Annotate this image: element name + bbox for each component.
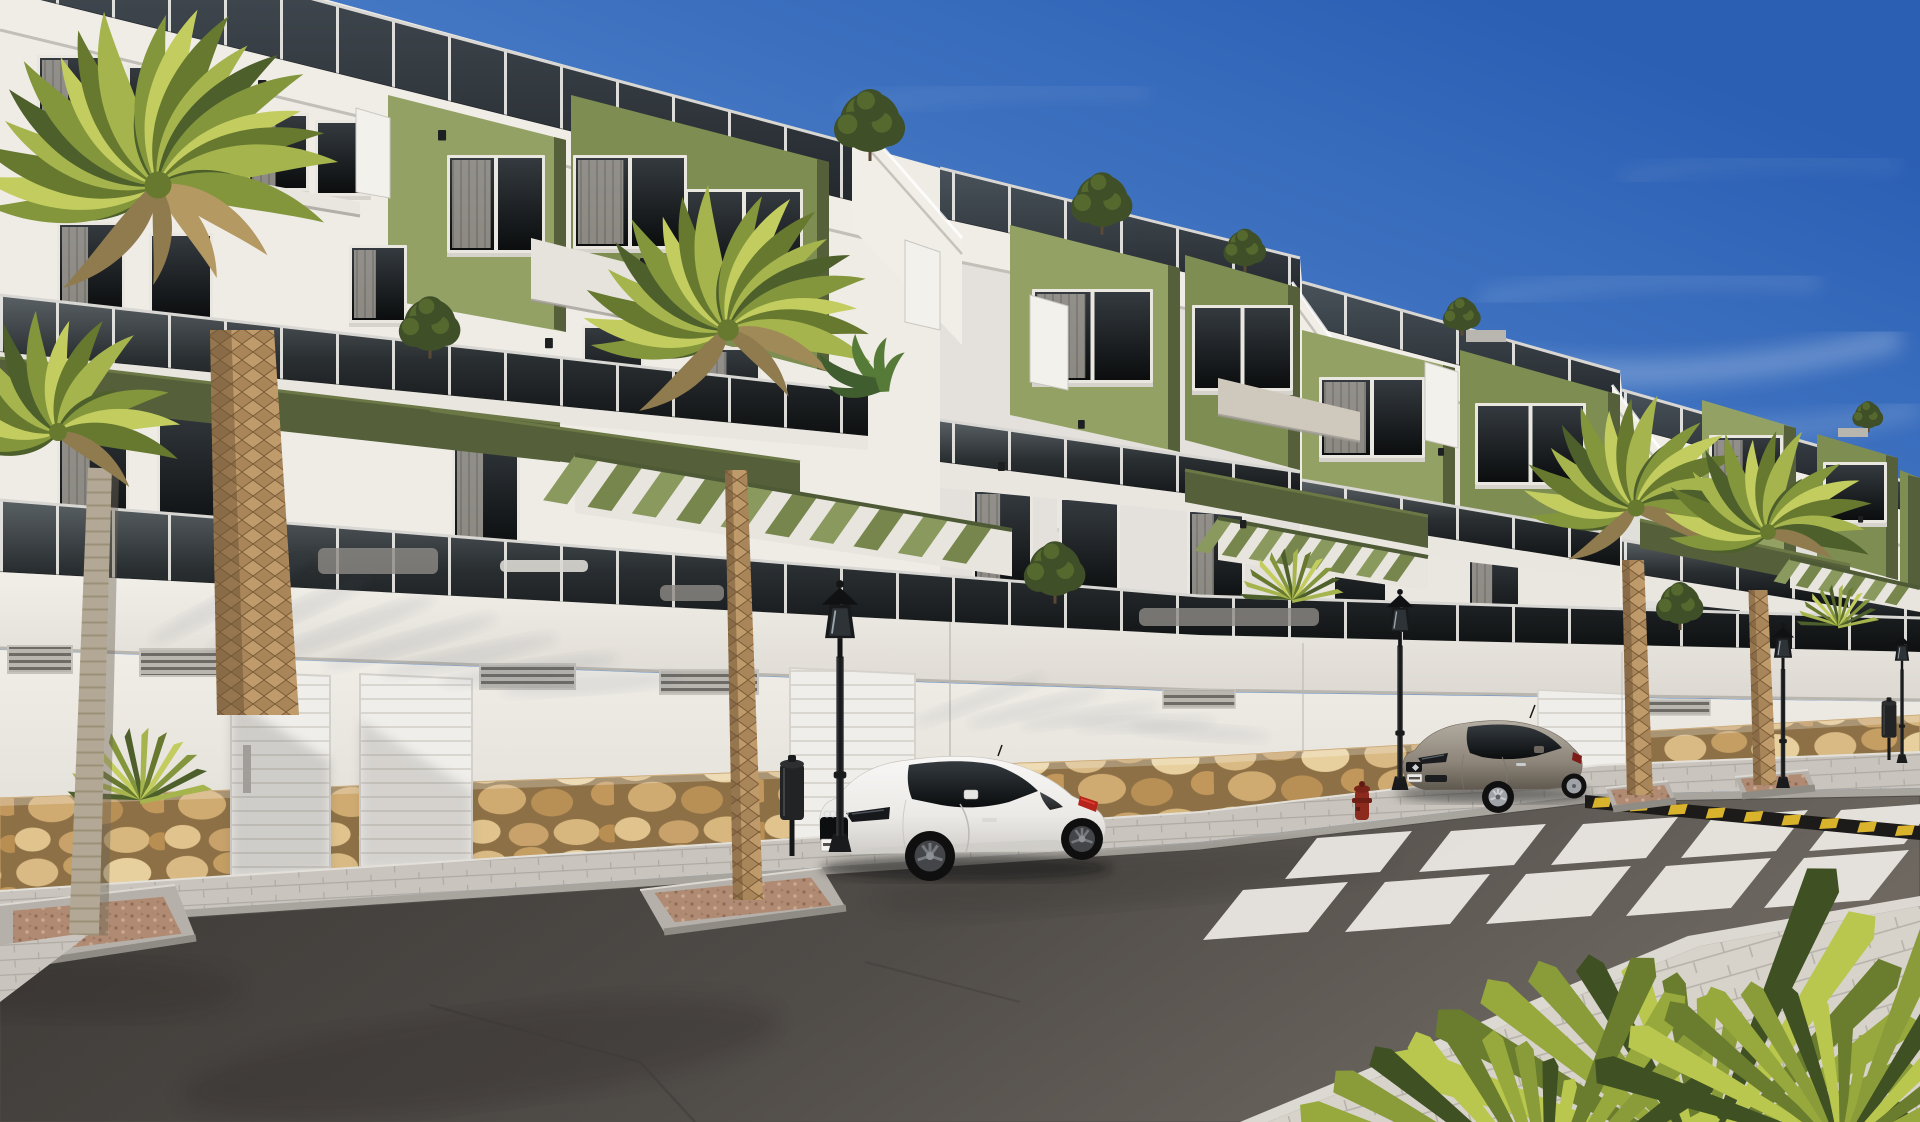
wing-wall [1425,362,1458,448]
warning-dash [1668,804,1688,815]
window [1192,305,1293,395]
wing-wall [905,240,940,330]
wall-lamp [438,130,446,141]
wall-lamp [998,462,1005,471]
warning-dash [1592,797,1612,808]
street-render [0,0,1920,1122]
warning-dash [1819,818,1839,829]
wing-wall [1030,295,1068,390]
window [447,155,545,257]
window [349,245,407,327]
wall-lamp [1438,448,1444,456]
wing-wall [356,108,390,198]
wall-lamp [545,338,553,348]
wall-lamp [1078,420,1085,429]
wall-lamp [1858,516,1863,523]
warning-dash [1743,811,1763,822]
warning-dash [1781,814,1801,825]
warning-dash [1895,825,1915,836]
warning-dash [1706,807,1726,818]
warning-dash [1857,821,1877,832]
garage-door [360,674,472,870]
wall-lamp [1240,520,1246,528]
